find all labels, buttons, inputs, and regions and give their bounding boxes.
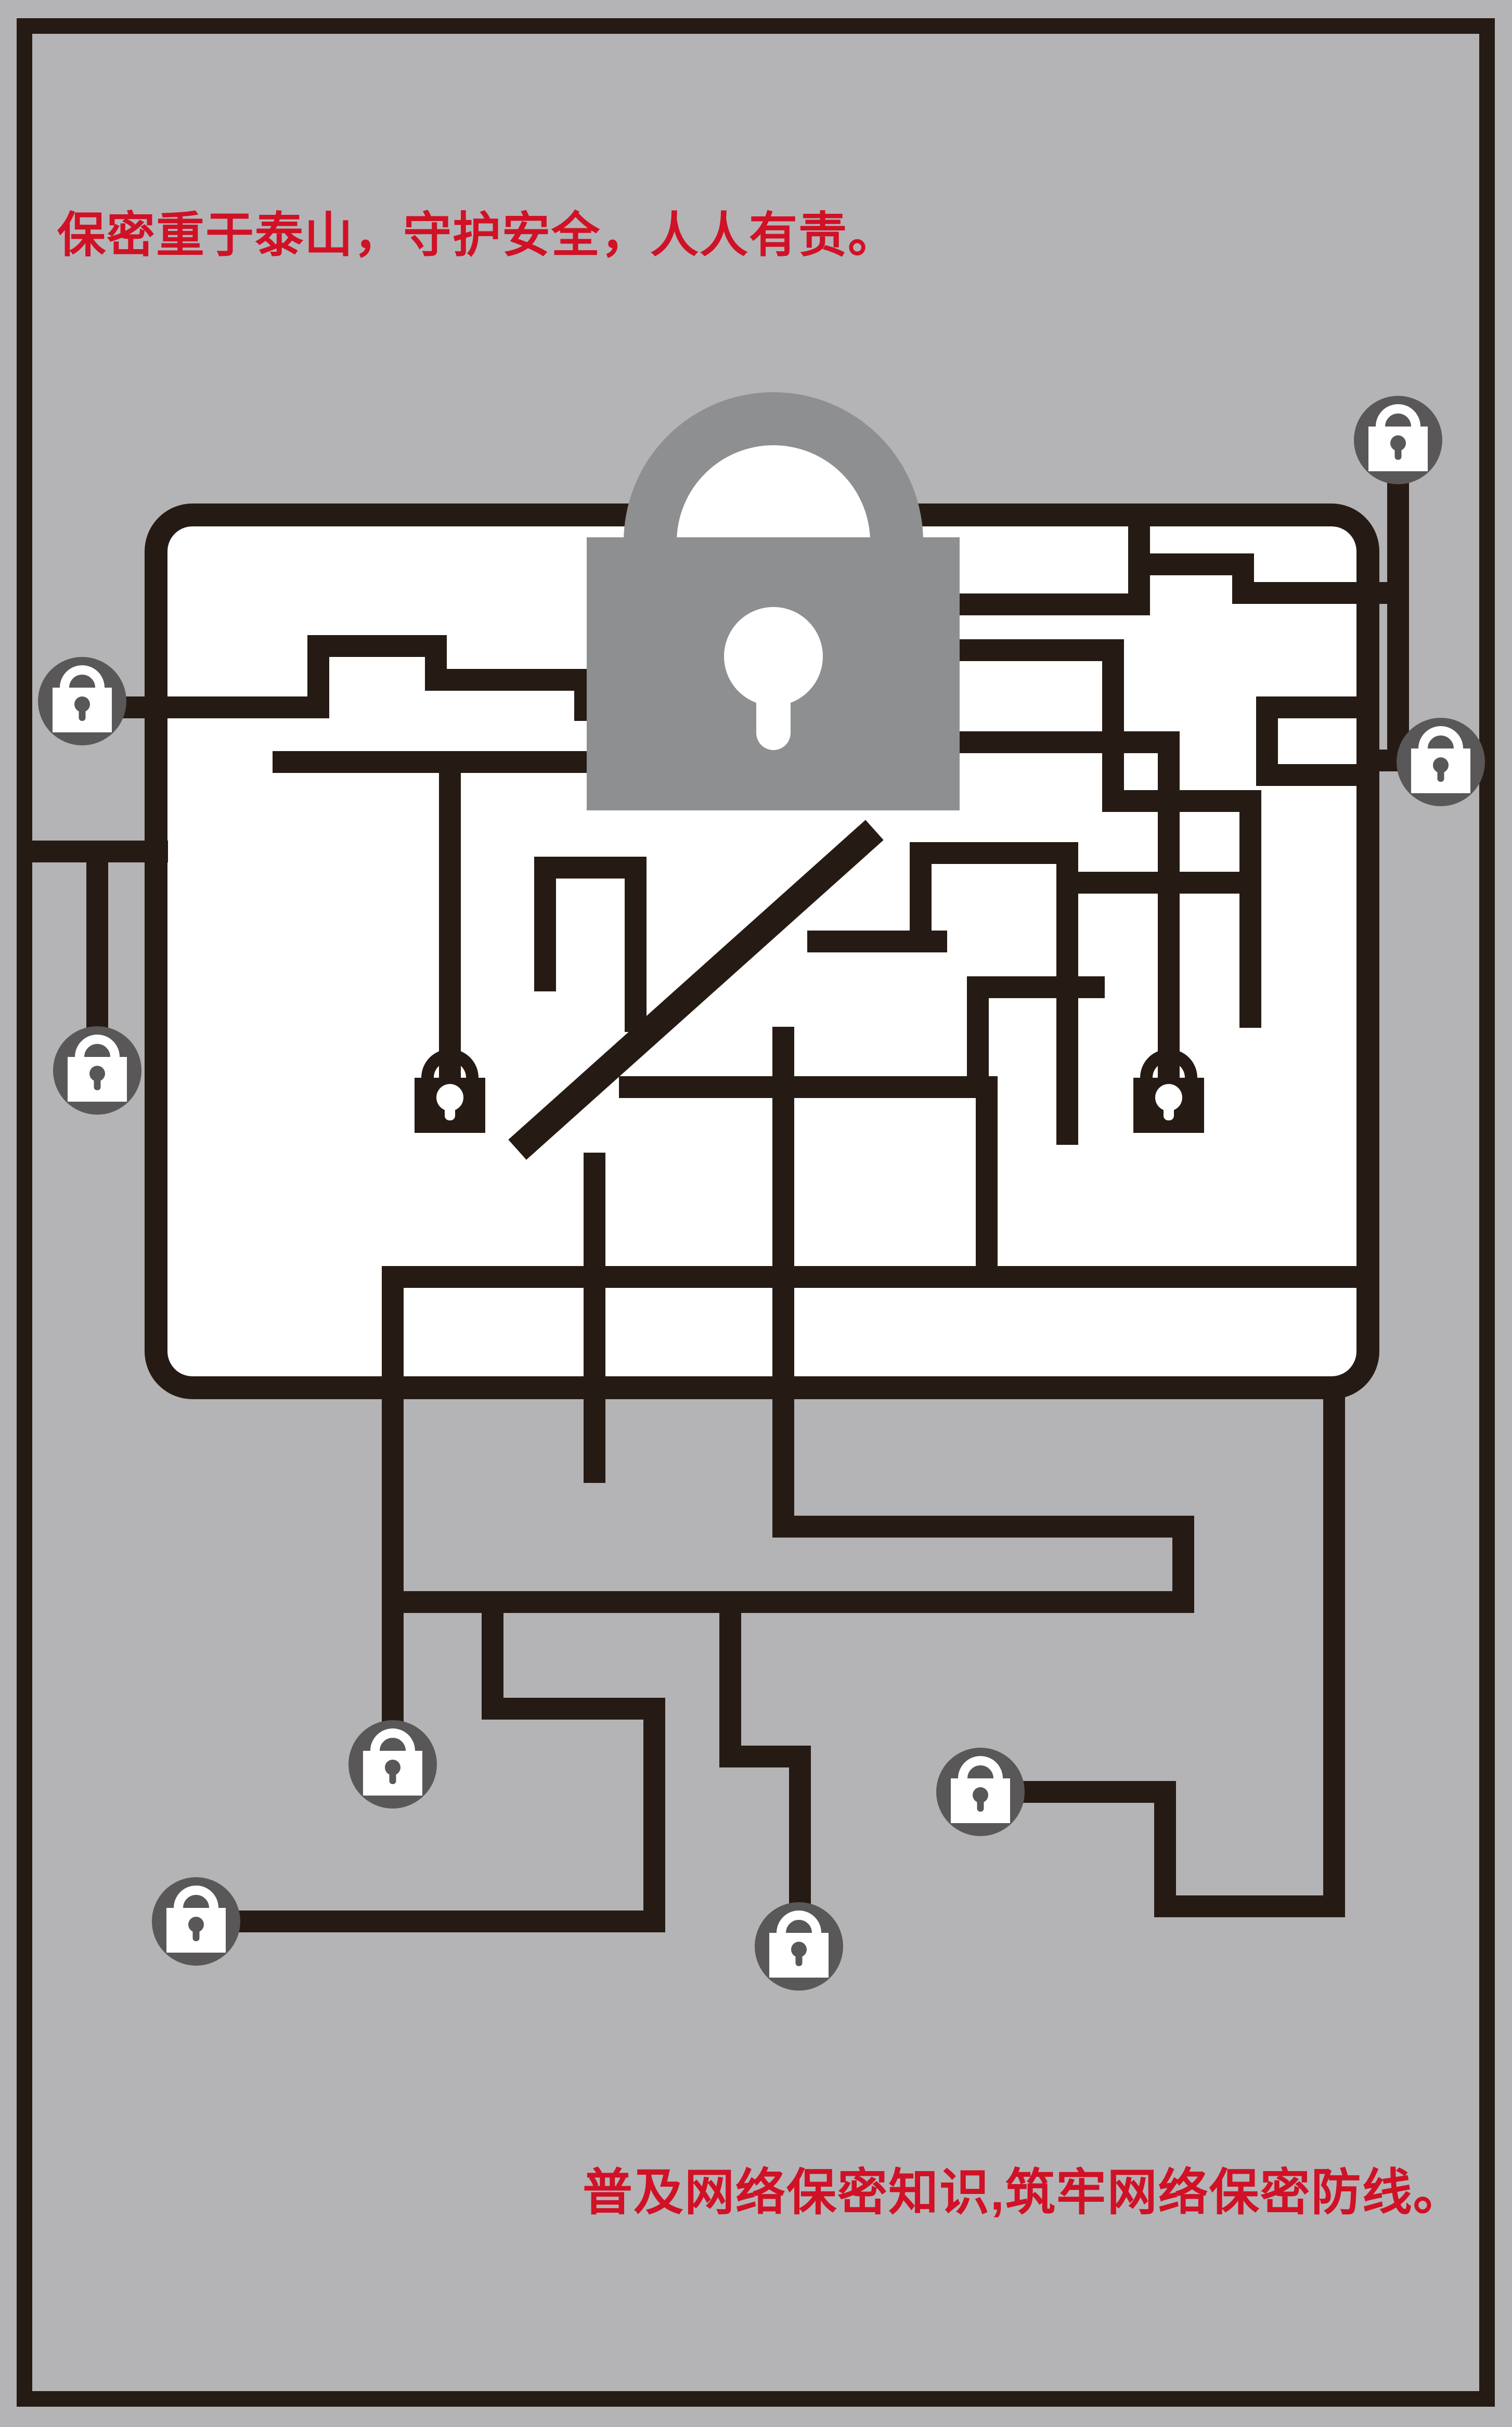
hanging-lock-left-keyhole-stem	[445, 1098, 455, 1120]
hanging-lock-right-keyhole-stem	[1164, 1098, 1174, 1120]
maze-line-lock8-chain	[1022, 1395, 1334, 1906]
lock-left-upper-keyhole-stem	[79, 704, 86, 721]
lock-bottom-left-keyhole-stem	[193, 1925, 200, 1941]
slogan-bottom: 普及网络保密知识,筑牢网络保密防线。	[583, 2168, 1464, 2218]
lock-top-right-keyhole-stem	[1395, 443, 1402, 460]
maze-line-lock9-zigzag	[493, 1602, 654, 1921]
slogan-top: 保密重于泰山，守护安全，人人有责。	[57, 211, 897, 260]
main-padlock-keyhole-stem	[756, 656, 791, 750]
maze-line-lock10-feeder	[730, 1602, 800, 1900]
maze-lock-graphic	[0, 0, 1512, 2427]
lock-bottom-mid-r-keyhole-stem	[977, 1795, 984, 1812]
maze-line-below-board-s1	[783, 1527, 1183, 1602]
lock-bottom-center-keyhole-stem	[796, 1950, 803, 1966]
lock-left-lower-keyhole-stem	[94, 1074, 101, 1090]
security-poster: 保密重于泰山，守护安全，人人有责。 普及网络保密知识,筑牢网络保密防线。	[0, 0, 1512, 2427]
lock-bottom-mid-l-keyhole-stem	[390, 1767, 396, 1784]
lock-right-mid-keyhole-stem	[1438, 765, 1444, 782]
